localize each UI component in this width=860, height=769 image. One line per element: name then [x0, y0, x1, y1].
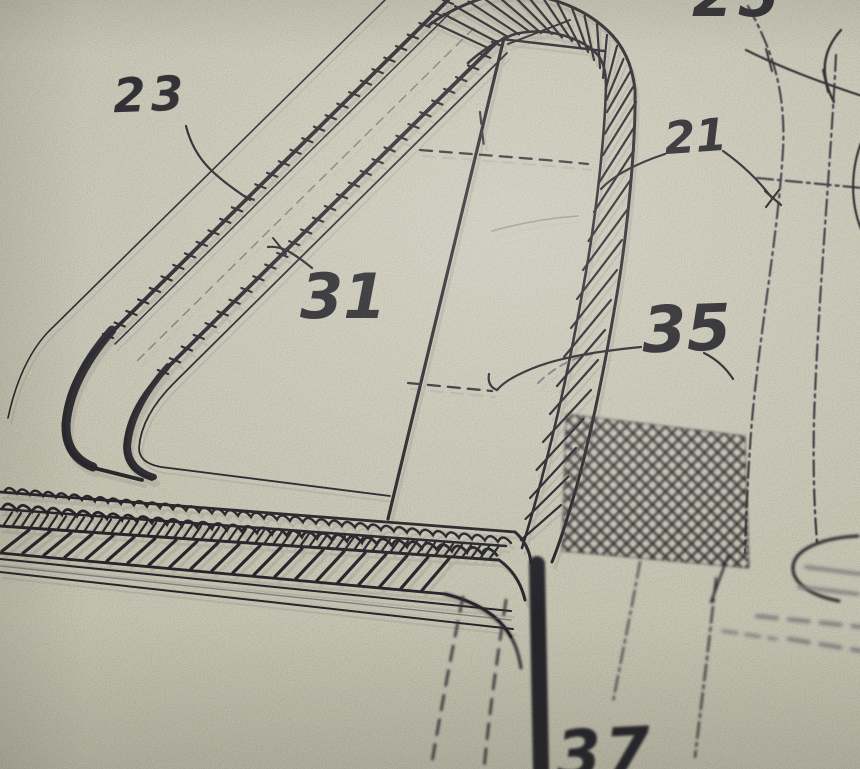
patent-drawing-photo: 37 25 23 31 21 35	[0, 0, 860, 769]
film-grain-overlay	[0, 0, 860, 769]
figure-canvas: 37 25 23 31 21 35	[0, 0, 860, 769]
